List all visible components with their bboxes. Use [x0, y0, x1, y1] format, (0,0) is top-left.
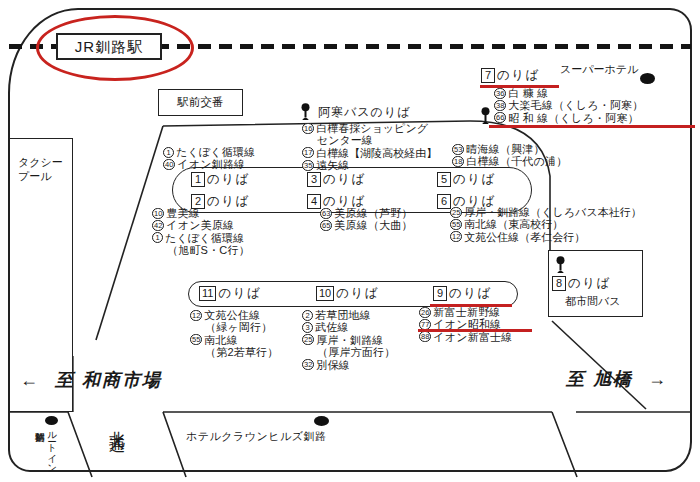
stop-9-red-underline — [430, 304, 512, 307]
route-line: 55南北線（東高校行） — [450, 218, 642, 230]
stop-7-routes: 36白 糠 線 38大楽毛線（くしろ・阿寒） 66昭 和 線（くしろ・阿寒） — [494, 87, 644, 124]
route-name: 美原線（大曲） — [334, 219, 412, 231]
route-line: 10豊美線 — [152, 207, 250, 219]
lower-right-routes: 25厚岸・釧路線（くしろバス本社行） 55南北線（東高校行） 12文苑公住線（孝… — [450, 206, 642, 243]
route-inn-line1: ルートイン — [47, 425, 58, 468]
red-highlight-ellipse — [36, 15, 194, 81]
route-name: 厚岸・釧路線（くしろバス本社行） — [464, 206, 641, 218]
route-line: 25厚岸・釧路線（くしろバス本社行） — [450, 206, 642, 218]
stop-number-box: 9 — [433, 286, 447, 301]
route-name: 白樺線（千代の浦） — [466, 155, 567, 167]
route-name: たくぼく循環線 — [165, 232, 244, 244]
route-line: 16白樺春採ショッピング — [302, 122, 437, 134]
bus-stop-icon — [299, 103, 312, 121]
route-inn-dot — [45, 416, 58, 425]
route-line: （旭町S・C行） — [152, 244, 250, 256]
route-line: 12文苑公住線 — [190, 309, 279, 321]
route-number: 66 — [494, 112, 506, 123]
route-name: （緑ヶ岡行） — [205, 321, 272, 333]
route-name: （厚岸方面行） — [317, 346, 395, 358]
route-line: 38大楽毛線（くしろ・阿寒） — [494, 99, 644, 111]
route-number: 26 — [419, 307, 431, 318]
route-name: イオン新富士線 — [433, 331, 512, 343]
route-line: 88イオン新富士線 — [419, 331, 513, 343]
route-line: 55南北線 — [190, 334, 279, 346]
route-name: 大楽毛線（くしろ・阿寒） — [508, 99, 643, 111]
super-hotel-label: スーパーホテル — [560, 62, 638, 77]
direction-east: 至 旭橋 → — [566, 367, 668, 391]
stop-1-label: 1のりば — [191, 171, 250, 188]
taxi-pool-label: タクシープール — [18, 155, 72, 183]
stop-number-box: 8 — [552, 276, 566, 291]
route-name: （旭町S・C行） — [167, 244, 250, 256]
route-number: 88 — [419, 331, 431, 342]
route-name: 白樺線【湖陵高校経由】 — [316, 147, 437, 159]
direction-west-label: 至 和商市場 — [55, 370, 162, 390]
route-name: 若草団地線 — [315, 309, 371, 321]
route-line: 53晴海線（興津） — [452, 143, 567, 155]
route-line: （厚岸方面行） — [302, 346, 395, 358]
upper-middle-routes: 16白樺春採ショッピング センター線 17白樺線【湖陵高校経由】 35遠矢線 — [302, 122, 437, 172]
stop-number-box: 10 — [316, 286, 334, 301]
route-name: 美原線（芦野） — [334, 207, 412, 219]
stop-9-label: 9のりば — [433, 285, 492, 302]
hotel-crown-dot — [314, 416, 329, 426]
stop-7-number-box: 7 — [481, 68, 495, 83]
route-name: 文苑公住線 — [204, 309, 260, 321]
route-number: 38 — [494, 100, 506, 111]
route-number: 55 — [190, 334, 202, 345]
noriba-text: のりば — [323, 171, 366, 188]
stop-10-routes: 2若草団地線 3武佐線 25厚岸・釧路線 （厚岸方面行） 32別保線 — [302, 309, 395, 371]
route-number: 25 — [450, 207, 462, 218]
route-name: 白 糠 線 — [508, 87, 548, 99]
route-line: 12文苑公住線（孝仁会行） — [450, 231, 642, 243]
super-hotel-dot — [640, 73, 655, 84]
right-arrow-icon: → — [648, 369, 668, 389]
route-line: 63美原線（芦野） — [320, 207, 413, 219]
route-line: 1たくぼく循環線 — [152, 232, 250, 244]
route-line: 1たくぼく循環線 — [163, 146, 255, 158]
route-name: 白樺春採ショッピング — [316, 122, 428, 134]
route-name: 南北線 — [204, 334, 238, 346]
noriba-text: のりば — [449, 285, 492, 302]
route-number: 25 — [302, 334, 314, 345]
bus-terminal-map: JR釧路駅 駅前交番 タクシープール 阿寒バスのりば スーパーホテル 7 のりば… — [0, 0, 700, 482]
stop-5-label: 5のりば — [437, 171, 496, 188]
route-name: たくぼく循環線 — [176, 146, 255, 158]
route-line: 36白 糠 線 — [494, 87, 644, 99]
lower-middle-routes: 63美原線（芦野） 65美原線（大曲） — [320, 207, 413, 232]
route-number: 53 — [452, 144, 464, 155]
route-77-red-underline — [418, 329, 532, 332]
stop-7-header: 7 のりば — [481, 67, 540, 84]
route-name: 豊美線 — [166, 207, 200, 219]
route-name: 武佐線 — [315, 321, 349, 333]
stop-number-box: 6 — [437, 194, 451, 209]
noriba-text: のりば — [497, 67, 540, 84]
stop-10-label: 10のりば — [316, 285, 379, 302]
noriba-text: のりば — [568, 275, 611, 292]
stop-number-box: 3 — [307, 172, 321, 187]
route-number: 10 — [152, 208, 164, 219]
hotel-crown-label: ホテルクラウンヒルズ釧路 — [186, 429, 327, 444]
route-number: 3 — [302, 322, 313, 333]
stop-8-box: 8のりば 都市間バス — [548, 250, 643, 317]
route-line: 25厚岸・釧路線 — [302, 334, 395, 346]
route-number: 16 — [302, 123, 314, 134]
stop-number-box: 1 — [191, 172, 205, 187]
route-name: 新富士新野線 — [433, 306, 500, 318]
route-66-red-underline — [489, 125, 695, 128]
police-box-label: 駅前交番 — [159, 90, 242, 114]
noriba-text: のりば — [336, 285, 379, 302]
route-line: 35遠矢線 — [302, 159, 437, 171]
route-number: 12 — [190, 310, 202, 321]
route-name: 厚岸・釧路線 — [316, 334, 383, 346]
route-line: 40イオン釧路線 — [163, 158, 255, 170]
route-number: 35 — [302, 160, 314, 171]
route-line: 65美原線（大曲） — [320, 219, 413, 231]
stop-11-label: 11のりば — [199, 285, 261, 302]
upper-left-routes: 1たくぼく循環線 40イオン釧路線 — [163, 146, 255, 171]
bus-stop-icon — [479, 107, 492, 125]
route-number: 2 — [302, 310, 313, 321]
route-number: 17 — [302, 147, 314, 158]
route-number: 12 — [450, 231, 462, 242]
route-name: 昭 和 線（くしろ・阿寒） — [508, 112, 639, 124]
police-box: 駅前交番 — [158, 89, 243, 116]
noriba-text: のりば — [218, 285, 261, 302]
route-name: 遠矢線 — [316, 159, 349, 171]
left-arrow-icon: ← — [20, 370, 40, 390]
akan-bus-label: 阿寒バスのりば — [318, 104, 410, 121]
route-line: 17白樺線【湖陵高校経由】 — [302, 147, 437, 159]
route-line: 42イオン美原線 — [152, 219, 250, 231]
stop-9-routes: 26新富士新野線 77イオン昭和線 88イオン新富士線 — [419, 306, 513, 343]
route-name: 晴海線（興津） — [466, 143, 544, 155]
route-line: 3武佐線 — [302, 321, 395, 333]
route-number: 55 — [450, 219, 462, 230]
route-line: 2若草団地線 — [302, 309, 395, 321]
direction-east-label: 至 旭橋 — [566, 369, 633, 389]
bus-stop-icon — [554, 256, 567, 274]
stop-number-box: 4 — [307, 194, 321, 209]
route-name: 別保線 — [316, 359, 350, 371]
stop-8-header: 8のりば — [552, 275, 611, 292]
stop-7-red-underline — [480, 85, 559, 88]
route-name: イオン釧路線 — [177, 158, 245, 170]
route-inn-label: ルートイン 釧路駅前 — [34, 425, 58, 479]
stop-number-box: 11 — [199, 286, 216, 301]
route-name: （第2若草行） — [205, 346, 279, 358]
stop-number-box: 5 — [437, 172, 451, 187]
route-number: 32 — [302, 359, 314, 370]
route-line: （第2若草行） — [190, 346, 279, 358]
direction-west: ← 至 和商市場 — [20, 368, 162, 392]
route-number: 1 — [152, 232, 163, 243]
route-name: 文苑公住線（孝仁会行） — [464, 231, 585, 243]
upper-right-routes: 53晴海線（興津） 18白樺線（千代の浦） — [452, 143, 567, 168]
route-number: 36 — [494, 88, 506, 99]
lower-left-routes: 10豊美線 42イオン美原線 1たくぼく循環線 （旭町S・C行） — [152, 207, 250, 257]
route-name: 南北線（東高校行） — [464, 218, 563, 230]
route-number: 1 — [163, 147, 174, 158]
route-number: 42 — [152, 220, 164, 231]
route-line: 66昭 和 線（くしろ・阿寒） — [494, 112, 644, 124]
noriba-text: のりば — [207, 171, 250, 188]
route-name: センター線 — [317, 134, 373, 146]
route-line: センター線 — [302, 134, 437, 146]
route-line: 32別保線 — [302, 359, 395, 371]
intercity-bus-label: 都市間バス — [565, 294, 621, 309]
route-number: 18 — [452, 156, 464, 167]
route-name: イオン美原線 — [166, 219, 234, 231]
route-line: （緑ヶ岡行） — [190, 321, 279, 333]
route-number: 40 — [163, 159, 175, 170]
stop-3-label: 3のりば — [307, 171, 366, 188]
noriba-text: のりば — [453, 171, 496, 188]
kita-odori-label: 北大通 — [106, 418, 127, 480]
route-line: 26新富士新野線 — [419, 306, 513, 318]
stop-11-routes: 12文苑公住線 （緑ヶ岡行） 55南北線 （第2若草行） — [190, 309, 279, 359]
route-line: 18白樺線（千代の浦） — [452, 155, 567, 167]
route-number: 63 — [320, 208, 332, 219]
route-number: 65 — [320, 220, 332, 231]
